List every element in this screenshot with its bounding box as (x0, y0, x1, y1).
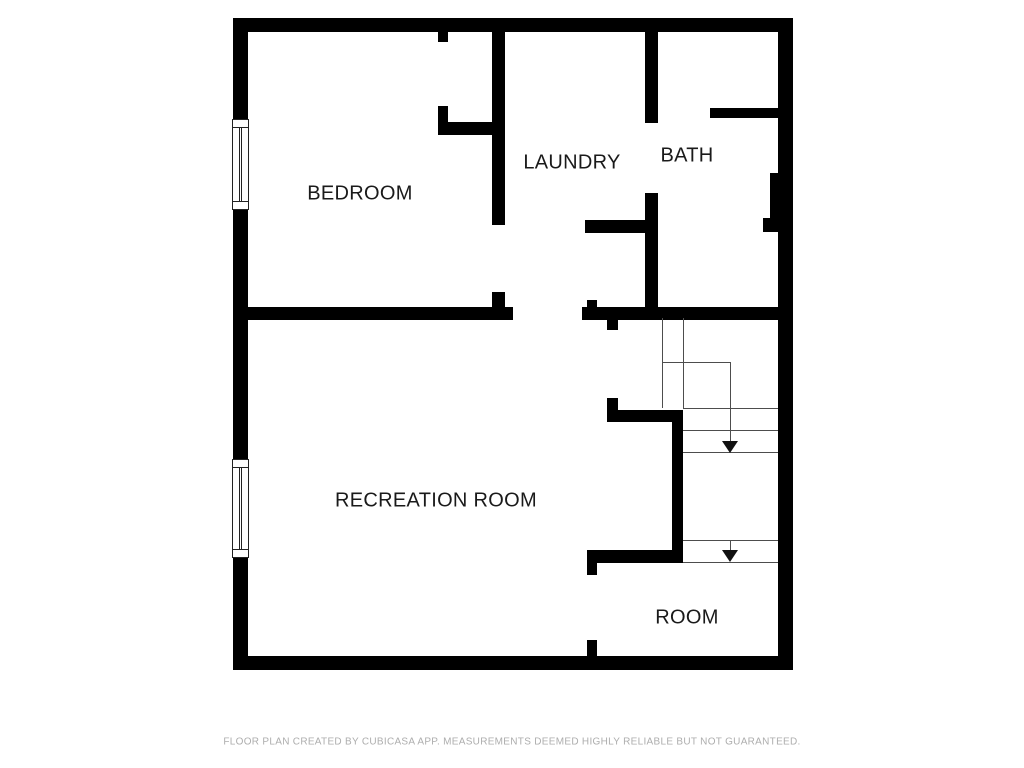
stair-walk-line (662, 362, 731, 363)
outer-wall-right (778, 18, 793, 670)
outer-wall-left-upper (233, 18, 248, 119)
stair-tread-line (683, 318, 684, 408)
recreation-room-window (232, 459, 249, 558)
bedroom-window-frame (239, 128, 242, 201)
outer-wall-left-lower (233, 558, 248, 670)
recreation-room-window-frame (239, 468, 242, 549)
room-label-room: ROOM (655, 607, 718, 630)
stair-down-arrow-upper-stem (730, 362, 731, 442)
room-label-laundry: LAUNDRY (523, 152, 620, 175)
main-divider-wall-left (248, 307, 513, 320)
bath-wall-upper (645, 32, 658, 123)
stair-down-arrow-lower-head (722, 550, 738, 562)
room-label-recreation-room: RECREATION ROOM (335, 490, 537, 513)
bath-wall-lower (645, 193, 658, 320)
room-label-bath: BATH (660, 145, 713, 168)
bedroom-window (232, 119, 249, 210)
disclaimer-text: FLOOR PLAN CREATED BY CUBICASA APP. MEAS… (223, 737, 800, 748)
room-top-wall (587, 550, 683, 563)
room-label-bedroom: BEDROOM (307, 183, 412, 206)
closet-wall-stub-top (438, 32, 448, 42)
stair-entry-wall-top (607, 318, 618, 330)
stair-tread-line (683, 562, 778, 563)
bath-shower-wall (710, 108, 778, 118)
closet-wall-stub-bottom (438, 106, 448, 122)
outer-wall-bottom (233, 656, 793, 670)
room-left-wall-stub-bottom (587, 640, 597, 660)
outer-wall-top (233, 18, 793, 32)
floor-plan-canvas: BEDROOMLAUNDRYBATHRECREATION ROOMROOM (0, 0, 1024, 768)
bath-duct-foot (763, 218, 778, 232)
bedroom-laundry-wall-upper (492, 32, 505, 225)
hall-closet-wall-stub (587, 300, 597, 320)
stair-tread-line (662, 318, 663, 408)
room-left-wall-stub-top (587, 563, 597, 575)
bedroom-window-frame (233, 201, 248, 202)
stair-down-arrow-upper-head (722, 441, 738, 453)
outer-wall-left-middle (233, 210, 248, 459)
recreation-room-window-frame (233, 549, 248, 550)
stair-wall-vertical (672, 410, 683, 563)
